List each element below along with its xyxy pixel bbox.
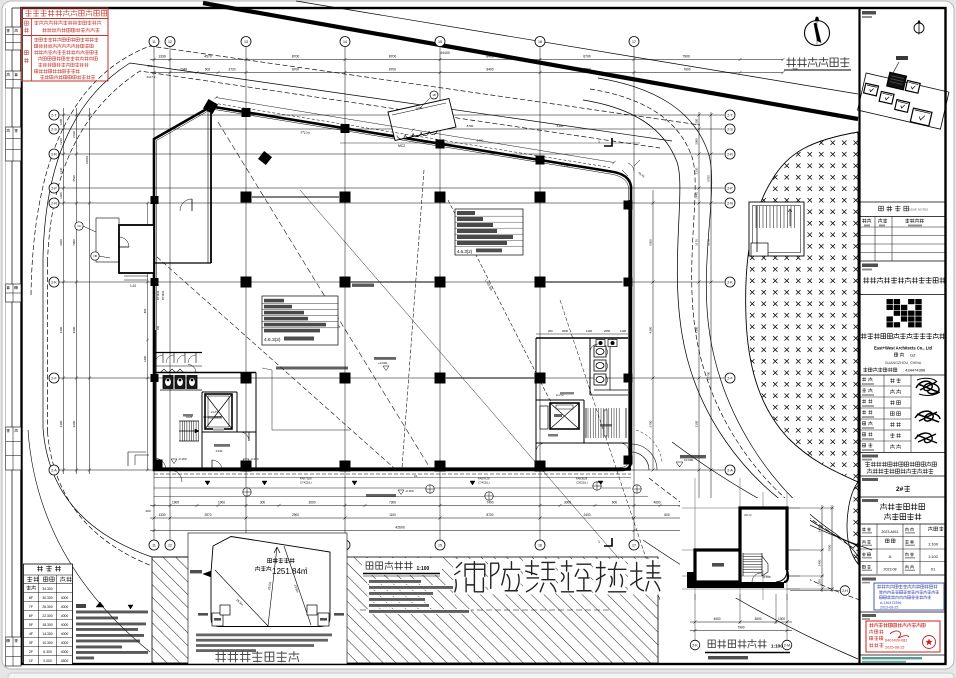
- svg-text:1330: 1330: [158, 513, 165, 517]
- svg-text:6.300: 6.300: [43, 650, 52, 654]
- svg-text:4300: 4300: [59, 326, 63, 333]
- svg-text:4000: 4000: [713, 617, 720, 621]
- svg-text:4000: 4000: [61, 605, 69, 609]
- svg-text:6407439-082: 6407439-082: [885, 639, 907, 643]
- svg-text:2025-08-25: 2025-08-25: [885, 646, 904, 650]
- svg-text:-0.150: -0.150: [215, 449, 223, 453]
- svg-text:15: 15: [438, 40, 442, 44]
- svg-text:14.300: 14.300: [42, 632, 52, 636]
- svg-text:6700: 6700: [648, 420, 652, 427]
- svg-text:A: A: [889, 554, 892, 559]
- svg-text:2-K: 2-K: [727, 280, 733, 284]
- svg-text:7300: 7300: [389, 501, 396, 505]
- svg-text:42600: 42600: [395, 526, 405, 530]
- svg-text:12: 12: [168, 543, 172, 547]
- svg-text:2300: 2300: [694, 420, 698, 427]
- svg-text:4000: 4000: [61, 641, 69, 645]
- svg-text:2-R: 2-R: [51, 152, 57, 156]
- svg-text:BY1452: BY1452: [156, 290, 160, 300]
- svg-text:7900: 7900: [72, 239, 76, 246]
- svg-text:1100: 1100: [389, 513, 396, 517]
- svg-text:44400: 44400: [440, 51, 450, 55]
- svg-text:8700: 8700: [292, 68, 299, 72]
- svg-text:300: 300: [203, 415, 208, 419]
- svg-text:1: 1: [598, 540, 600, 544]
- svg-text:8700: 8700: [467, 124, 474, 128]
- svg-text:ISSUE NOTES: ISSUE NOTES: [908, 208, 928, 212]
- svg-text:4000: 4000: [61, 596, 69, 600]
- svg-text:6700: 6700: [583, 68, 590, 72]
- svg-text:4500: 4500: [61, 659, 69, 663]
- svg-text:1900: 1900: [218, 501, 225, 505]
- svg-text:7900: 7900: [682, 55, 690, 59]
- svg-text:9200: 9200: [72, 420, 76, 427]
- svg-text:18: 18: [432, 93, 436, 97]
- svg-text:2570: 2570: [204, 513, 211, 517]
- svg-text:2-P: 2-P: [51, 186, 57, 190]
- svg-text:4000: 4000: [61, 632, 69, 636]
- svg-text:4.6.3(2): 4.6.3(2): [457, 249, 473, 254]
- svg-text:1330: 1330: [158, 55, 166, 59]
- svg-text:7800: 7800: [828, 544, 832, 551]
- svg-text:12: 12: [168, 40, 172, 44]
- svg-text:: 424474396: : 424474396: [903, 368, 926, 373]
- svg-text:4570: 4570: [204, 55, 212, 59]
- svg-text:MC2: MC2: [398, 144, 405, 148]
- svg-text:1:10: 1:10: [130, 284, 136, 288]
- svg-text:1:100: 1:100: [928, 555, 938, 559]
- svg-text:3170: 3170: [694, 239, 698, 246]
- svg-text:1100: 1100: [620, 329, 626, 333]
- svg-text:30.300: 30.300: [42, 596, 52, 600]
- svg-text:1440: 1440: [694, 192, 698, 199]
- svg-text:-0.150: -0.150: [250, 457, 259, 461]
- svg-text:200: 200: [548, 329, 553, 333]
- svg-text:600: 600: [664, 513, 670, 517]
- svg-text:1:100: 1:100: [928, 542, 939, 547]
- svg-text:2400: 2400: [818, 559, 822, 566]
- svg-text:2-K: 2-K: [51, 280, 57, 284]
- svg-text:16: 16: [538, 543, 542, 547]
- svg-text:1200: 1200: [694, 118, 698, 125]
- svg-text:2400: 2400: [583, 513, 590, 517]
- svg-text:3170: 3170: [706, 239, 710, 246]
- svg-text:2300: 2300: [59, 420, 63, 427]
- svg-text:3720: 3720: [228, 68, 235, 72]
- svg-text:1: 1: [598, 140, 600, 144]
- svg-text:2#: 2#: [896, 486, 904, 493]
- svg-text:9600: 9600: [72, 326, 76, 333]
- svg-text:10.300: 10.300: [42, 641, 52, 645]
- svg-text:2117.3: 2117.3: [147, 75, 156, 79]
- svg-text:2400: 2400: [818, 525, 822, 532]
- svg-text:300: 300: [260, 501, 266, 505]
- svg-text:2-T: 2-T: [727, 113, 733, 117]
- svg-text:2#LT2: 2#LT2: [744, 513, 752, 517]
- svg-text:8700: 8700: [486, 513, 493, 517]
- svg-text:8700: 8700: [389, 68, 396, 72]
- svg-text:1300: 1300: [778, 617, 785, 621]
- svg-text:13: 13: [244, 40, 248, 44]
- svg-text:300: 300: [157, 325, 160, 330]
- svg-text:18.300: 18.300: [42, 623, 52, 627]
- svg-text:2900: 2900: [292, 513, 299, 517]
- svg-text:2-K: 2-K: [692, 643, 698, 647]
- svg-text:200: 200: [792, 68, 798, 72]
- svg-text:2049: 2049: [180, 68, 187, 72]
- svg-text:8400: 8400: [486, 55, 494, 59]
- svg-text:6700: 6700: [583, 55, 591, 59]
- svg-text:7600: 7600: [683, 68, 690, 72]
- svg-text:2-A: 2-A: [727, 468, 733, 472]
- svg-text:+0.000: +0.000: [378, 361, 388, 365]
- svg-text:C7422(L): C7422(L): [478, 481, 490, 485]
- svg-text:2600: 2600: [562, 329, 569, 333]
- svg-text:2-T: 2-T: [51, 113, 57, 117]
- svg-text:1230: 1230: [59, 138, 63, 145]
- svg-text:3600: 3600: [754, 617, 761, 621]
- svg-text:200: 200: [147, 64, 152, 68]
- svg-text:1B: 1B: [93, 254, 97, 258]
- svg-text:6300: 6300: [648, 239, 652, 246]
- svg-text:2-R: 2-R: [727, 152, 733, 156]
- svg-text:2-M: 2-M: [784, 643, 790, 647]
- svg-text:1200: 1200: [818, 579, 822, 586]
- svg-text:902: 902: [205, 68, 211, 72]
- svg-text:900: 900: [612, 501, 618, 505]
- svg-text:3000: 3000: [308, 501, 315, 505]
- svg-text:4.6.3(2): 4.6.3(2): [264, 337, 281, 343]
- svg-text:4300: 4300: [694, 326, 698, 333]
- svg-text:6400: 6400: [557, 124, 564, 128]
- svg-text:15: 15: [438, 543, 442, 547]
- svg-text:1251.84m: 1251.84m: [272, 567, 308, 576]
- svg-text:16: 16: [538, 40, 542, 44]
- svg-text:2050: 2050: [604, 329, 611, 333]
- svg-text:4530: 4530: [72, 175, 76, 182]
- svg-text:34.300: 34.300: [42, 587, 52, 591]
- svg-text:0.000: 0.000: [43, 659, 52, 663]
- svg-text:22.300: 22.300: [42, 614, 52, 618]
- svg-text:11: 11: [152, 543, 156, 547]
- svg-text:2-S: 2-S: [51, 127, 57, 131]
- svg-text:01: 01: [931, 567, 936, 572]
- svg-text:1A: 1A: [77, 224, 81, 228]
- svg-text:-0.150: -0.150: [405, 489, 414, 493]
- svg-text:7900: 7900: [737, 626, 744, 630]
- svg-text:31010: 31010: [85, 155, 89, 164]
- svg-text:1100: 1100: [586, 329, 592, 333]
- svg-text:BY1452: BY1452: [161, 290, 165, 300]
- svg-text:8400: 8400: [486, 68, 493, 72]
- svg-text:4600: 4600: [653, 501, 660, 505]
- svg-text:2430: 2430: [72, 131, 76, 138]
- svg-text:11: 11: [152, 40, 156, 44]
- svg-text:2023-A011: 2023-A011: [881, 530, 898, 534]
- svg-text:8700: 8700: [292, 55, 300, 59]
- svg-text:2023.08: 2023.08: [884, 568, 897, 572]
- svg-text:A:136473396: A:136473396: [880, 601, 901, 605]
- svg-text:3080: 3080: [694, 138, 698, 145]
- svg-text:C3022(L): C3022(L): [576, 481, 588, 485]
- svg-text:4300: 4300: [648, 326, 652, 333]
- svg-text:26.300: 26.300: [42, 605, 52, 609]
- svg-text:17: 17: [632, 40, 636, 44]
- svg-text:-0.150: -0.150: [178, 457, 187, 461]
- svg-text:1400: 1400: [59, 192, 63, 199]
- svg-text:3130: 3130: [59, 167, 63, 174]
- svg-text:1900: 1900: [172, 501, 179, 505]
- svg-text:2023-08-25: 2023-08-25: [880, 606, 898, 610]
- svg-text:1400: 1400: [143, 356, 147, 362]
- svg-text:2-F: 2-F: [51, 376, 57, 380]
- svg-text:2-H: 2-H: [842, 589, 848, 593]
- svg-text:4000: 4000: [61, 650, 69, 654]
- svg-text:±0.000: ±0.000: [684, 458, 693, 462]
- svg-text:2-S: 2-S: [727, 127, 733, 131]
- svg-text:2-F: 2-F: [727, 376, 733, 380]
- svg-text:200: 200: [145, 509, 150, 513]
- svg-text:3130: 3130: [694, 167, 698, 174]
- svg-text:17700: 17700: [706, 371, 710, 380]
- svg-text:GUANGZHOU, CHINA: GUANGZHOU, CHINA: [885, 361, 922, 365]
- svg-text:C1: C1: [414, 474, 418, 478]
- svg-text:2-LT1: 2-LT1: [211, 410, 219, 414]
- svg-text:1:100: 1:100: [771, 644, 783, 649]
- svg-text:4000: 4000: [61, 614, 69, 618]
- svg-text:1:100: 1:100: [417, 566, 430, 572]
- svg-text:2-N: 2-N: [51, 201, 57, 205]
- svg-text:8700: 8700: [389, 55, 397, 59]
- svg-text:GZ: GZ: [910, 353, 916, 358]
- svg-text:3400: 3400: [59, 239, 63, 246]
- svg-text:17: 17: [632, 543, 636, 547]
- svg-text:2-N: 2-N: [727, 201, 733, 205]
- svg-text:6700: 6700: [706, 175, 710, 182]
- svg-text:14: 14: [343, 40, 347, 44]
- svg-text:7400: 7400: [486, 501, 493, 505]
- svg-text:1200: 1200: [59, 118, 63, 125]
- svg-text:C7422(L): C7422(L): [300, 481, 312, 485]
- svg-text:-4.700: -4.700: [762, 575, 771, 579]
- svg-text:4000: 4000: [61, 623, 69, 627]
- svg-text:800: 800: [143, 308, 147, 313]
- svg-text:2-P: 2-P: [727, 186, 733, 190]
- svg-text:East+West Architects Co., Ltd: East+West Architects Co., Ltd: [874, 346, 933, 351]
- svg-text:2-A: 2-A: [51, 468, 57, 472]
